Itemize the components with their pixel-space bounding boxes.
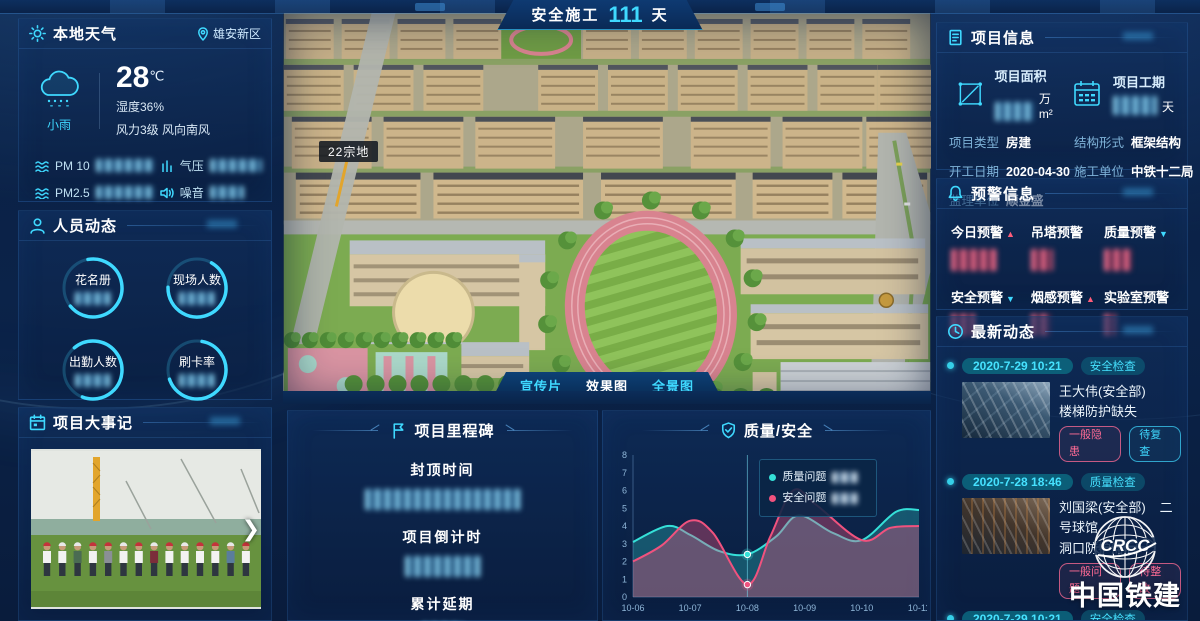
quality-warning-cell: 质量预警▼ xyxy=(1104,222,1173,271)
builder-label: 施工单位 xyxy=(1074,165,1124,179)
weather-condition: 小雨 xyxy=(35,116,83,133)
ring-arc xyxy=(164,255,230,321)
header-decoration xyxy=(127,225,261,226)
svg-text:4: 4 xyxy=(622,521,627,531)
weather-header: 本地天气 雄安新区 xyxy=(19,19,271,49)
update-tags: 一般隐患待复查 xyxy=(1059,426,1181,462)
countdown-redacted xyxy=(405,556,481,577)
quality-safety-title: 质量/安全 xyxy=(744,420,813,441)
update-date-badge: 2020-7-29 10:21 xyxy=(962,358,1073,374)
project-info-panel: 项目信息 项目面积 万m² 项目工期 xyxy=(936,22,1188,170)
flag-icon xyxy=(390,422,407,439)
trend-arrow: ▲ xyxy=(1006,229,1015,239)
project-type-label: 项目类型 xyxy=(949,136,999,150)
location-label: 雄安新区 xyxy=(213,25,261,42)
project-area-stat: 项目面积 万m² xyxy=(947,66,1062,121)
svg-text:6: 6 xyxy=(622,486,627,496)
trend-arrow: ▼ xyxy=(1006,294,1015,304)
svg-text:10-06: 10-06 xyxy=(621,603,644,613)
project-duration-redacted xyxy=(1113,96,1157,115)
svg-text:7: 7 xyxy=(622,468,627,478)
crcc-abbr: CRCC xyxy=(1100,536,1150,555)
header-wing xyxy=(642,430,708,431)
structure-label: 结构形式 xyxy=(1074,136,1124,150)
updates-header: 最新动态 xyxy=(937,317,1187,347)
safety-legend-row: 安全问题 xyxy=(769,488,867,509)
structure-field: 结构形式框架结构 xyxy=(1074,132,1194,151)
delay-item: 累计延期 xyxy=(288,594,597,621)
pressure-label: 气压 xyxy=(180,157,204,174)
area-measure-icon xyxy=(955,77,986,111)
group-photo xyxy=(31,449,261,609)
quality-series-dot xyxy=(769,474,776,481)
update-date-badge: 2020-7-29 10:21 xyxy=(962,611,1073,620)
onsite-count-stat[interactable]: 现场人数 xyxy=(164,255,230,321)
builder-value: 中铁十二局 xyxy=(1131,165,1194,179)
milestone-title: 项目里程碑 xyxy=(414,420,494,441)
shield-check-icon xyxy=(720,422,737,439)
update-type-badge: 质量检查 xyxy=(1081,473,1145,491)
delay-label: 累计延期 xyxy=(288,594,597,614)
update-type-badge: 安全检查 xyxy=(1081,357,1145,375)
scene-footer-band xyxy=(283,391,931,404)
milestone-panel: 项目里程碑 封顶时间 项目倒计时 累计延期 xyxy=(287,410,598,621)
speaker-icon xyxy=(160,187,174,199)
right-school-complex xyxy=(741,238,931,403)
project-area-redacted xyxy=(995,102,1034,121)
header-decoration xyxy=(1045,331,1177,332)
events-title: 项目大事记 xyxy=(53,412,133,433)
roster-value-redacted xyxy=(75,292,111,305)
calendar-event-icon xyxy=(29,414,46,431)
updates-title: 最新动态 xyxy=(971,321,1035,342)
pressure-bars-icon xyxy=(160,160,174,172)
header-wing xyxy=(507,430,573,431)
safety-warning-label: 安全预警 xyxy=(951,290,1003,305)
milestone-list: 封顶时间 项目倒计时 累计延期 xyxy=(288,441,597,621)
crcc-name: 中国铁建 xyxy=(1060,574,1190,613)
card-rate-value-redacted xyxy=(179,374,215,387)
page-title: 安全施工 111 天 xyxy=(497,0,702,30)
crane-warning-cell: 吊塔预警 xyxy=(1031,222,1100,271)
pm25-label: PM2.5 xyxy=(55,186,90,200)
personnel-stats: 花名册 现场人数 出勤人数 刷卡率 xyxy=(19,241,271,417)
crane-warning-redacted xyxy=(1031,249,1053,271)
rain-cloud-icon xyxy=(35,69,83,109)
title-suffix: 天 xyxy=(652,4,669,25)
today-warning-cell: 今日预警▲ xyxy=(951,222,1027,271)
today-warning-label: 今日预警 xyxy=(951,225,1003,240)
personnel-title: 人员动态 xyxy=(53,215,117,236)
svg-text:0: 0 xyxy=(622,592,627,602)
crcc-logo: CRCC 中国铁建 xyxy=(1060,511,1190,613)
quality-series-label: 质量问题 xyxy=(782,467,826,488)
today-warning-redacted xyxy=(951,249,997,271)
timeline-dot xyxy=(947,478,954,485)
haze-icon xyxy=(35,160,49,172)
header-decoration xyxy=(1045,193,1177,194)
weather-title: 本地天气 xyxy=(53,23,117,44)
quality-value-redacted xyxy=(832,472,858,483)
weather-panel: 本地天气 雄安新区 小雨 28℃ 湿度36% 风力3级 风向南风 xyxy=(18,18,272,202)
project-area-unit: 万m² xyxy=(1039,90,1062,121)
ring-arc xyxy=(164,337,230,403)
update-item[interactable]: 2020-7-29 10:21 安全检查 王大伟(安全部) 楼梯防护缺失 一般隐… xyxy=(949,357,1181,462)
carousel-next-arrow[interactable]: ❯ xyxy=(242,516,260,542)
svg-text:10-10: 10-10 xyxy=(850,603,873,613)
person-icon xyxy=(29,217,46,234)
document-icon xyxy=(947,29,964,46)
update-photo-thumbnail xyxy=(962,498,1050,554)
svg-text:2: 2 xyxy=(622,557,627,567)
svg-text:1: 1 xyxy=(622,574,627,584)
title-deco-right xyxy=(755,3,785,11)
trend-arrow: ▲ xyxy=(1086,294,1095,304)
humidity-label: 湿度36% xyxy=(116,97,210,118)
roster-label: 花名册 xyxy=(75,271,111,288)
topping-time-label: 封顶时间 xyxy=(288,460,597,480)
status-tag: 一般隐患 xyxy=(1059,426,1121,462)
location-pin-icon xyxy=(197,27,209,41)
weather-current: 小雨 28℃ 湿度36% 风力3级 风向南风 xyxy=(19,49,271,143)
attendance-label: 出勤人数 xyxy=(69,353,117,370)
countdown-label: 项目倒计时 xyxy=(288,527,597,547)
structure-value: 框架结构 xyxy=(1131,136,1181,150)
project-duration-unit: 天 xyxy=(1162,98,1174,115)
noise-metric: 噪音 xyxy=(160,184,262,201)
personnel-panel: 人员动态 花名册 现场人数 出勤人数 刷卡率 xyxy=(18,210,272,400)
ring-arc xyxy=(60,337,126,403)
events-header: 项目大事记 xyxy=(19,408,271,438)
svg-text:10-11: 10-11 xyxy=(908,603,927,613)
svg-text:10-07: 10-07 xyxy=(679,603,702,613)
warnings-header: 预警信息 xyxy=(937,179,1187,209)
safe-days-count: 111 xyxy=(608,2,642,28)
haze-icon xyxy=(35,187,49,199)
sun-icon xyxy=(29,25,46,42)
update-description: 楼梯防护缺失 xyxy=(1059,402,1181,422)
safety-series-label: 安全问题 xyxy=(782,488,826,509)
timeline-dot xyxy=(947,362,954,369)
project-info-header: 项目信息 xyxy=(937,23,1187,53)
calendar-icon xyxy=(1070,77,1104,111)
title-prefix: 安全施工 xyxy=(531,4,599,25)
crane-warning-label: 吊塔预警 xyxy=(1031,225,1083,240)
quality-safety-header: 质量/安全 xyxy=(603,411,930,441)
project-duration-label: 项目工期 xyxy=(1113,72,1174,91)
pressure-value-redacted xyxy=(210,159,262,172)
crane xyxy=(93,457,100,521)
svg-text:8: 8 xyxy=(622,450,627,460)
pm10-value-redacted xyxy=(96,159,154,172)
svg-text:10-09: 10-09 xyxy=(793,603,816,613)
noise-value-redacted xyxy=(210,186,244,199)
quality-warning-redacted xyxy=(1104,249,1132,271)
card-rate-stat[interactable]: 刷卡率 xyxy=(164,337,230,403)
attendance-stat[interactable]: 出勤人数 xyxy=(60,337,126,403)
personnel-header: 人员动态 xyxy=(19,211,271,241)
project-events-panel: 项目大事记 ❯ xyxy=(18,407,272,621)
air-metrics: PM 10 气压 PM2.5 噪音 xyxy=(19,143,271,201)
project-info-stats: 项目面积 万m² 项目工期 天 xyxy=(937,53,1187,130)
location-badge[interactable]: 雄安新区 xyxy=(197,25,261,42)
topping-time-redacted xyxy=(365,489,521,510)
header-wing xyxy=(312,430,378,431)
pm10-metric: PM 10 xyxy=(35,157,154,174)
campus-3d-view[interactable]: 22宗地 宣传片 效果图 全景图 xyxy=(283,13,931,403)
start-date-value: 2020-04-30 xyxy=(1006,165,1070,179)
project-type-value: 房建 xyxy=(1006,136,1031,150)
pm25-value-redacted xyxy=(96,186,154,199)
header-decoration xyxy=(1045,37,1177,38)
card-rate-label: 刷卡率 xyxy=(179,353,215,370)
noise-label: 噪音 xyxy=(180,184,204,201)
title-deco-left xyxy=(415,3,445,11)
smoke-warning-label: 烟感预警 xyxy=(1031,290,1083,305)
temperature-unit: ℃ xyxy=(149,69,164,84)
timeline-dot xyxy=(947,615,954,620)
quality-warning-label: 质量预警 xyxy=(1104,225,1156,240)
status-tag: 待复查 xyxy=(1129,426,1181,462)
roster-stat[interactable]: 花名册 xyxy=(60,255,126,321)
svg-text:3: 3 xyxy=(622,539,627,549)
bell-icon xyxy=(947,185,964,202)
pressure-metric: 气压 xyxy=(160,157,262,174)
project-area-label: 项目面积 xyxy=(995,66,1062,85)
topping-time-item: 封顶时间 xyxy=(288,460,597,510)
pm25-metric: PM2.5 xyxy=(35,184,154,201)
warnings-panel: 预警信息 今日预警▲ 吊塔预警 质量预警▼ 安全预警▼ 烟感预警▲ 实验室预警 xyxy=(936,178,1188,310)
ring-arc xyxy=(60,255,126,321)
quality-legend-row: 质量问题 xyxy=(769,467,867,488)
header-decoration xyxy=(143,422,261,423)
warnings-title: 预警信息 xyxy=(971,183,1035,204)
svg-text:5: 5 xyxy=(622,503,627,513)
project-type-field: 项目类型房建 xyxy=(949,132,1070,151)
temperature-value: 28 xyxy=(116,61,149,94)
milestone-header: 项目里程碑 xyxy=(288,411,597,441)
chart-tooltip: 质量问题 安全问题 xyxy=(759,459,877,517)
quality-safety-panel: 质量/安全 01234567810-0610-0710-0810-0910-10… xyxy=(602,410,931,621)
attendance-value-redacted xyxy=(75,374,111,387)
project-duration-stat: 项目工期 天 xyxy=(1062,66,1177,121)
clock-icon xyxy=(947,323,964,340)
update-date-badge: 2020-7-28 18:46 xyxy=(962,474,1073,490)
lab-warning-label: 实验室预警 xyxy=(1104,290,1169,305)
project-info-title: 项目信息 xyxy=(971,27,1035,48)
update-person: 王大伟(安全部) xyxy=(1059,384,1146,399)
safety-series-dot xyxy=(769,495,776,502)
quality-safety-chart-area: 01234567810-0610-0710-0810-0910-1010-11 … xyxy=(609,445,926,621)
countdown-item: 项目倒计时 xyxy=(288,527,597,577)
campus-render xyxy=(283,13,931,403)
onsite-label: 现场人数 xyxy=(173,271,221,288)
divider xyxy=(99,73,100,129)
construction-dashboard: { "header": { "prefix": "安全施工", "days": … xyxy=(0,0,1200,621)
event-photo-carousel: ❯ xyxy=(31,449,261,609)
svg-text:10-08: 10-08 xyxy=(736,603,759,613)
parcel-label: 22宗地 xyxy=(319,141,378,162)
onsite-value-redacted xyxy=(179,292,215,305)
header-wing xyxy=(825,430,891,431)
start-date-label: 开工日期 xyxy=(949,165,999,179)
safety-value-redacted xyxy=(832,493,858,504)
trend-arrow: ▼ xyxy=(1159,229,1168,239)
wind-label: 风力3级 风向南风 xyxy=(116,120,210,141)
crcc-globe-icon: CRCC xyxy=(1088,511,1162,583)
update-photo-thumbnail xyxy=(962,382,1050,438)
pm10-label: PM 10 xyxy=(55,159,90,173)
